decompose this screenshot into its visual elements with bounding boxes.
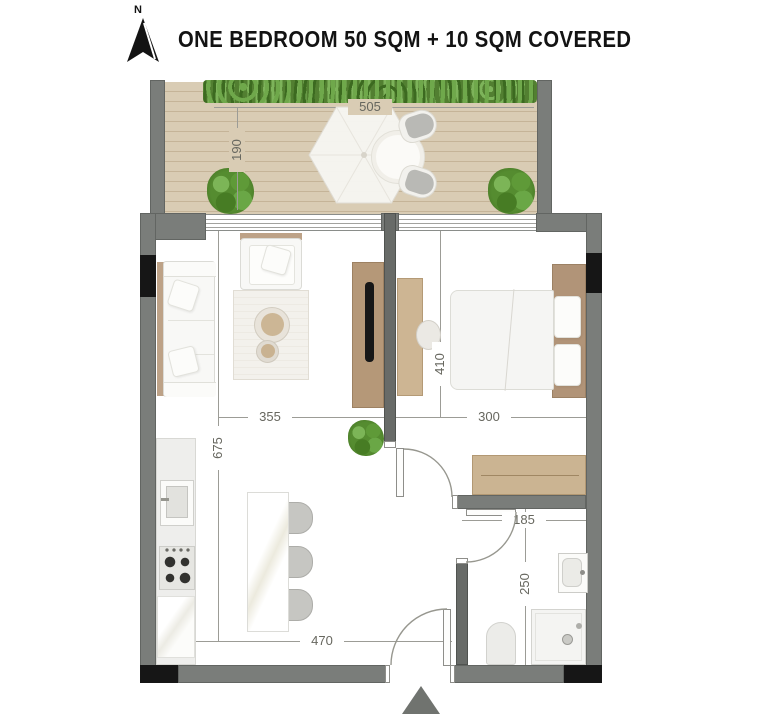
floor-plan-page: N ONE BEDROOM 50 SQM + 10 SQM COVERED — [0, 0, 768, 721]
coffee-table-small-top — [261, 344, 275, 358]
washbasin-bowl — [562, 558, 582, 587]
dim-balcony-width: 505 — [348, 99, 392, 115]
door-jamb — [452, 495, 458, 509]
sofa-armrest — [164, 262, 216, 277]
shower-tray — [531, 609, 586, 665]
dim-bathroom-width: 185 — [502, 512, 546, 528]
shower-drain — [562, 634, 573, 645]
chair-seat — [403, 111, 436, 141]
dim-lower-width: 470 — [300, 633, 344, 649]
dimension-line-355 — [218, 417, 384, 418]
door-jamb — [385, 665, 390, 683]
exterior-wall-bottom-left — [178, 665, 390, 683]
kitchen-sink-basin — [166, 486, 188, 518]
door-jamb — [384, 441, 396, 448]
north-arrow-icon — [122, 15, 164, 65]
sliding-door-right — [399, 214, 536, 231]
balcony-plant-right — [488, 168, 535, 214]
dim-bedroom-depth: 410 — [432, 342, 448, 386]
door-jamb — [456, 558, 468, 564]
sofa — [163, 261, 215, 397]
balcony-wall-left — [150, 80, 165, 215]
bathroom-wall-left — [456, 558, 468, 665]
sliding-door-left — [206, 214, 381, 231]
dim-balcony-depth: 190 — [229, 128, 245, 172]
dim-living-depth: 675 — [210, 426, 226, 470]
duvet-fold — [505, 289, 515, 391]
washbasin-tap — [580, 570, 585, 575]
dim-bedroom-width: 300 — [467, 409, 511, 425]
partition-wall-bedroom — [384, 213, 396, 443]
structural-column-left — [140, 255, 156, 297]
entrance-arrow — [402, 686, 440, 714]
entrance-door — [443, 609, 451, 666]
toilet — [486, 622, 516, 665]
dim-bathroom-depth: 250 — [517, 562, 533, 606]
living-room-plant — [348, 420, 384, 456]
sideboard-line — [481, 475, 579, 476]
balcony-plant-left — [207, 168, 254, 214]
sofa-seat-divider — [168, 320, 214, 321]
bedroom-sideboard — [472, 455, 586, 495]
structural-column-right — [586, 253, 602, 293]
bed-mattress — [450, 290, 554, 390]
tv-screen — [365, 282, 374, 362]
kitchen-base-cabinet — [157, 596, 195, 658]
structural-corner-bottom-left — [140, 665, 178, 683]
coffee-table-large-top — [261, 313, 284, 336]
structural-corner-bottom-right — [564, 665, 602, 683]
bed-pillow — [554, 296, 581, 338]
balcony-wall-right — [537, 80, 552, 215]
bed-pillow — [554, 344, 581, 386]
dimension-line-410 — [440, 231, 441, 417]
bedroom-bathroom-wall — [452, 495, 586, 509]
sofa-armrest — [164, 382, 216, 397]
shower-handle — [576, 623, 582, 629]
island-dining-table — [247, 492, 289, 632]
kitchen-faucet — [161, 498, 169, 501]
stove — [159, 546, 195, 590]
door-jamb — [450, 665, 455, 683]
dim-living-width: 355 — [248, 409, 292, 425]
page-title: ONE BEDROOM 50 SQM + 10 SQM COVERED — [178, 26, 631, 53]
shower-inner-line — [535, 613, 582, 661]
chair-seat — [403, 168, 436, 198]
bedroom-door — [396, 448, 404, 497]
exterior-wall-bottom-right — [452, 665, 564, 683]
